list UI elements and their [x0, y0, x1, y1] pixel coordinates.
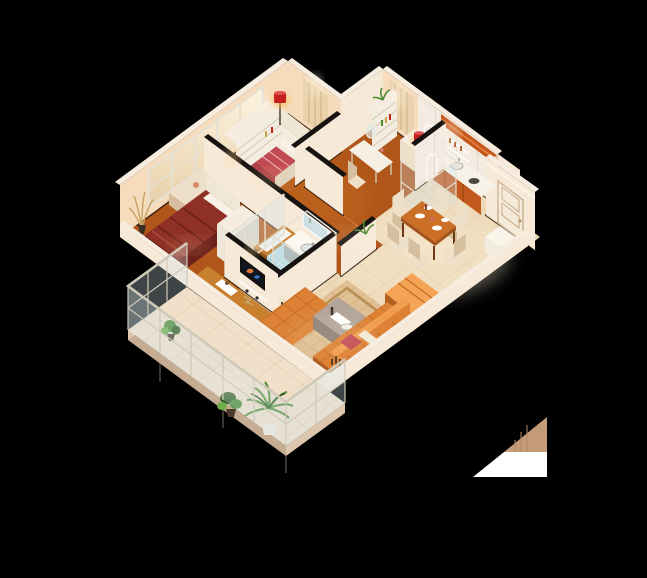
speaker [255, 296, 258, 299]
plate [415, 214, 425, 219]
sculpture [225, 281, 229, 285]
floor-glow [285, 315, 375, 355]
floor-glow [328, 227, 376, 249]
floor-glow [250, 168, 294, 188]
plate [441, 218, 449, 222]
wall-spotlight [497, 184, 513, 208]
wall-spotlight [443, 119, 461, 145]
wall-spotlight [224, 147, 240, 169]
desk-item [380, 148, 384, 152]
floor-plan-render [0, 0, 647, 578]
desk-mirror [366, 124, 376, 138]
wall-spotlight [245, 239, 259, 259]
cooktop [469, 178, 480, 184]
chaise-pillow [193, 182, 199, 188]
faucet [312, 243, 315, 246]
floor-glow [170, 236, 210, 254]
speaker [245, 289, 248, 292]
wall-spotlight [307, 73, 323, 99]
floor-plan-svg [0, 0, 647, 578]
door-knob [518, 219, 521, 222]
wall-spotlight [259, 89, 273, 111]
wall-spotlight [390, 83, 406, 109]
floor-glow [207, 374, 263, 396]
plate [432, 226, 442, 231]
